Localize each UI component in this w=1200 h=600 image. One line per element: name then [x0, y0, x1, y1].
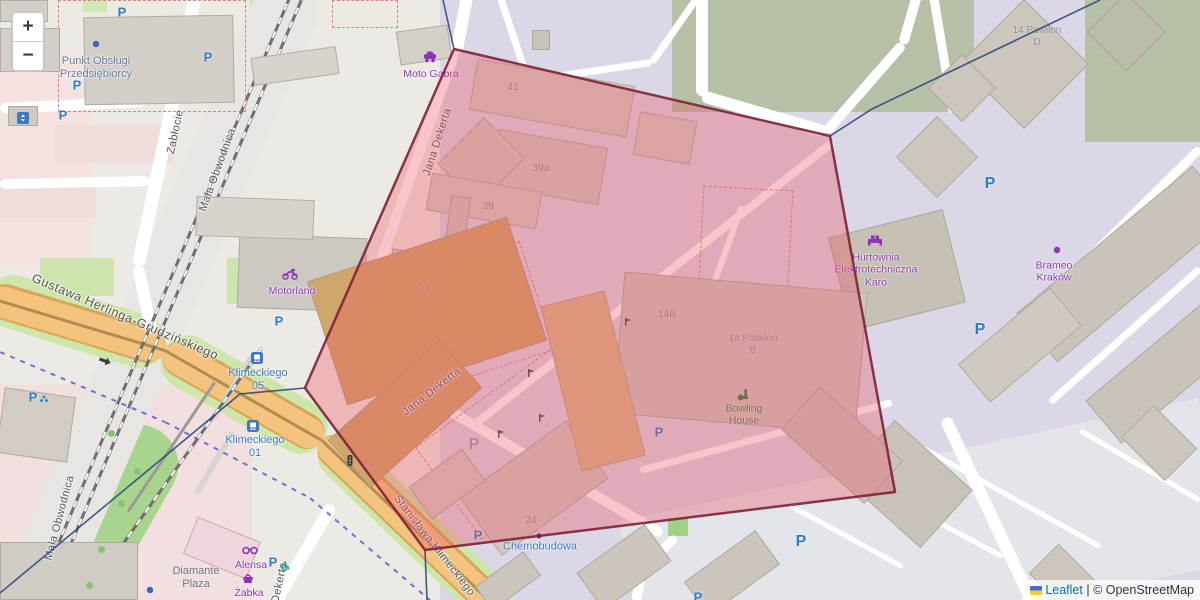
parking-icon: P: [269, 555, 278, 570]
parking-icon: P: [694, 590, 703, 600]
transit-stop-label: Klimeckiego 01: [225, 434, 284, 460]
bowling-icon: [737, 388, 751, 406]
poi-dot-icon: [1053, 241, 1061, 259]
convenience-store-icon: [241, 571, 255, 589]
parking-icon: P: [796, 533, 807, 551]
gate-icon: [497, 425, 505, 443]
parking-icon: P: [474, 528, 483, 543]
parking-icon: P: [985, 175, 996, 193]
motorcycle-icon: [282, 267, 298, 285]
parking-icon: P: [59, 108, 68, 123]
tram-stop-icon: [251, 351, 263, 369]
street-name-label: Stanisława Klimeckiego: [391, 493, 478, 599]
house-number-label: 39a: [533, 163, 550, 175]
parking-icon: P: [655, 425, 664, 440]
amenity-label: Punkt Obsługi Przedsiębiorcy: [60, 55, 132, 81]
parking-icon: P: [204, 50, 213, 65]
attribution-separator: |: [1086, 583, 1089, 597]
building-name-label: Diamante Plaza: [172, 565, 219, 591]
leaflet-link[interactable]: Leaflet: [1045, 583, 1083, 597]
car-dealer-icon: [422, 50, 438, 68]
gate-icon: [527, 364, 535, 382]
house-number-label: 39: [482, 201, 493, 213]
map-canvas[interactable]: ZabłocieMała ObwodnicaMała ObwodnicaJana…: [0, 0, 1200, 600]
oneway-arrow-icon: [96, 350, 113, 371]
attribution-bar: Leaflet | © OpenStreetMap: [1023, 580, 1200, 600]
house-number-label: 24: [525, 515, 536, 527]
street-name-label: Gustawa Herlinga-Grudzińskiego: [29, 271, 220, 363]
gate-icon: [538, 409, 546, 427]
street-name-label: Zabłocie: [165, 109, 187, 155]
house-number-label: 37: [418, 284, 429, 296]
poi-dot-icon: [146, 581, 154, 599]
fountain-icon: [39, 391, 49, 409]
glasses-shop-icon: [242, 542, 258, 560]
gate-icon: [624, 313, 632, 331]
street-name-label: Jana Dekerta: [400, 365, 463, 418]
parking-icon: P: [469, 436, 480, 454]
street-name-label: Mała Obwodnica: [197, 127, 239, 214]
wheelchair-icon: [281, 558, 290, 576]
zoom-control: + −: [11, 11, 45, 72]
poi-label: Bowling House: [726, 403, 763, 428]
transit-stop-label: Klimeckiego 05: [228, 367, 287, 393]
building-name-label: 14 Pawilon B: [729, 333, 778, 357]
poi-label: Alensa: [235, 559, 267, 571]
parking-icon: P: [29, 390, 38, 405]
street-name-label: Jana Dekerta: [263, 561, 290, 600]
openstreetmap-link[interactable]: © OpenStreetMap: [1093, 583, 1194, 597]
zoom-out-button[interactable]: −: [13, 42, 43, 70]
parking-icon: P: [118, 5, 127, 20]
street-name-label: Jana Dekerta: [421, 107, 455, 178]
poi-dot-icon: [92, 35, 100, 53]
poi-label: Żabka: [234, 587, 263, 599]
building-name-label: 14 Pawilon D: [1013, 25, 1062, 49]
house-number-label: 41: [507, 82, 518, 94]
street-name-label: Mała Obwodnica: [42, 474, 77, 562]
poi-label: Hurtownia Elektrotechniczna Karo: [835, 251, 918, 288]
parking-icon: P: [975, 321, 986, 339]
ukraine-flag-icon: [1030, 586, 1042, 595]
parking-icon: P: [275, 314, 284, 329]
map-label-layer: ZabłocieMała ObwodnicaMała ObwodnicaJana…: [0, 0, 1200, 600]
zoom-in-button[interactable]: +: [13, 13, 43, 42]
traffic-signal-icon: [348, 453, 353, 471]
elevator-icon: [17, 111, 29, 129]
house-number-label: 14B: [658, 309, 676, 321]
tram-stop-icon: [247, 419, 259, 437]
transit-stop-label: Chemobudowa: [503, 541, 577, 554]
parking-icon: P: [73, 78, 82, 93]
poi-label: Moto Gabra: [403, 68, 458, 80]
poi-label: Motorland: [269, 285, 316, 297]
poi-label: Brameo Kraków: [1036, 260, 1073, 285]
furniture-shop-icon: [867, 233, 883, 251]
